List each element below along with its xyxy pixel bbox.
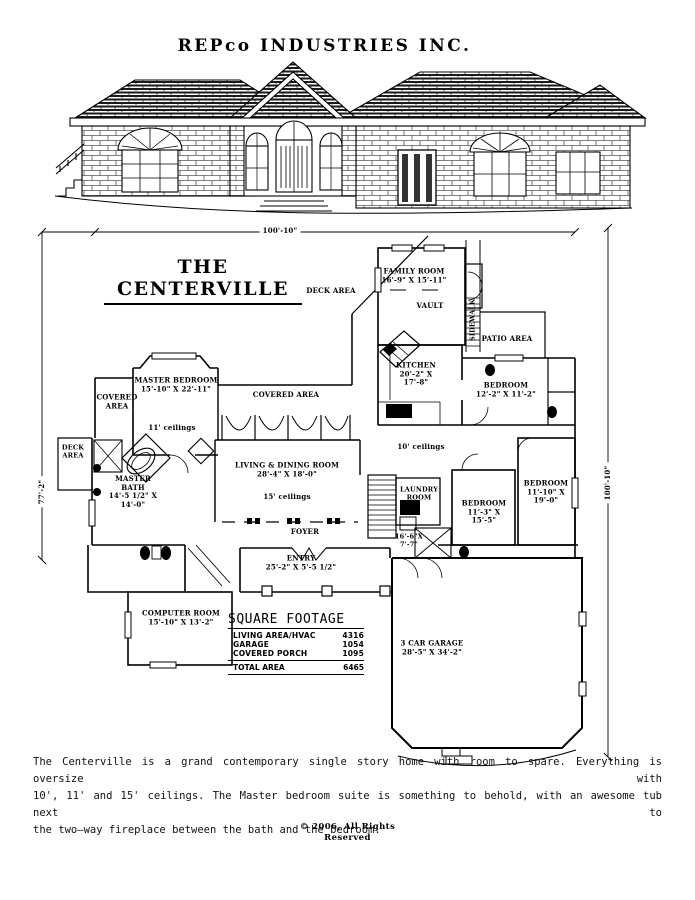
- dimension-top: 100'-10": [260, 227, 301, 236]
- house-elevation: [55, 62, 645, 213]
- label-family-room: FAMILY ROOM 16'-9" X 15'-11": [382, 268, 447, 285]
- label-laundry-dims: 16'-6"X 7'-7": [395, 534, 423, 549]
- label-covered-area-left: COVERED AREA: [97, 394, 138, 411]
- label-entry: ENTRY 25'-2" X 5'-5 1/2": [266, 555, 336, 572]
- label-garage: 3 CAR GARAGE 28'-5" X 34'-2": [401, 640, 464, 657]
- label-patio-area: PATIO AREA: [482, 335, 533, 344]
- label-master-bedroom: MASTER BEDROOM 15'-10" X 22'-11": [135, 377, 218, 394]
- company-title: REPco INDUSTRIES INC.: [0, 36, 672, 56]
- plan-title: THE CENTERVILLE: [104, 256, 302, 305]
- copyright: © 2006, All Rights Reserved: [0, 822, 695, 843]
- label-deck-area-upper: DECK AREA: [306, 287, 355, 296]
- table-row: COVERED PORCH 1095: [233, 649, 364, 658]
- plan-sheet: { "header": { "company": "REPco INDUSTRI…: [0, 0, 695, 900]
- label-covered-area-right: COVERED AREA: [253, 391, 319, 400]
- label-laundry-room: LAUNDRY ROOM: [400, 487, 438, 502]
- label-ceilings-15: 15' ceilings: [263, 493, 310, 502]
- label-master-bath: MASTER BATH 14'-5 1/2" X 14'-0": [109, 475, 157, 509]
- label-vault: VAULT: [417, 302, 444, 311]
- label-ceilings-11: 11' ceilings: [148, 424, 195, 433]
- label-computer-room: COMPUTER ROOM 15'-10" X 13'-2": [142, 610, 220, 627]
- label-bedroom-east: BEDROOM 11'-10" X 19'-0": [524, 479, 568, 505]
- table-row: LIVING AREA/HVAC 4316: [233, 631, 364, 640]
- label-kitchen: KITCHEN 20'-2" X 17'-8": [396, 361, 436, 387]
- label-ceilings-10: 10' ceilings: [397, 443, 444, 452]
- dimension-left: 77'-2": [38, 477, 47, 508]
- label-bedroom-ne: BEDROOM 12'-2" X 11'-2": [476, 382, 536, 399]
- table-row: GARAGE 1054: [233, 640, 364, 649]
- label-living-dining: LIVING & DINING ROOM 28'-4" X 18'-0": [235, 462, 339, 479]
- label-bedroom-mid: BEDROOM 11'-3" X 15'-5": [462, 499, 506, 525]
- label-sidewalk: SIDEWALK: [469, 299, 477, 341]
- label-foyer: FOYER: [291, 528, 319, 537]
- table-total-row: TOTAL AREA 6465: [228, 661, 364, 675]
- dimension-right: 100'-10": [604, 463, 613, 504]
- square-footage-table: SQUARE FOOTAGE LIVING AREA/HVAC 4316 GAR…: [228, 612, 364, 675]
- square-footage-title: SQUARE FOOTAGE: [228, 612, 364, 629]
- label-deck-area-left: DECK AREA: [62, 445, 84, 460]
